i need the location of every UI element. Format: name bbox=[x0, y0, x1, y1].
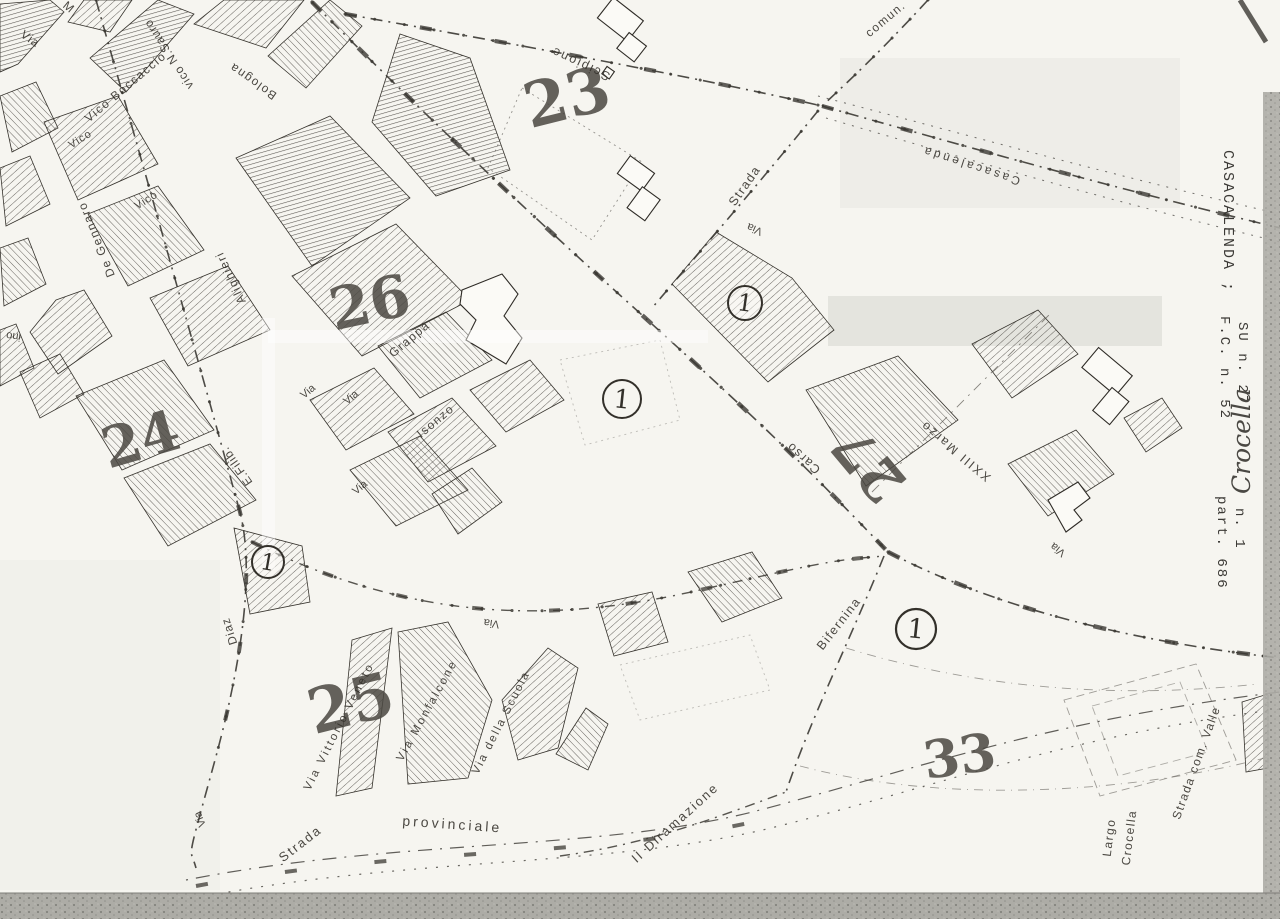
margin-note-n1: n. 1 bbox=[1231, 508, 1247, 550]
city-block bbox=[150, 266, 270, 366]
parcel-marker: 1 bbox=[896, 609, 936, 649]
scanned-cadastral-map: 23 26 24 25 27 33 1 1 1 1 Via M Vico Boc… bbox=[0, 0, 1280, 919]
city-block bbox=[470, 360, 564, 432]
street-label-via-crosstown: Via bbox=[482, 616, 500, 630]
building bbox=[597, 0, 643, 41]
margin-note-crocella: Crocella bbox=[1227, 388, 1256, 494]
street-label-bifernina: Bifernina bbox=[814, 594, 864, 652]
road-corner-fragment bbox=[1240, 0, 1266, 42]
street-label-strada-comunale: Strada bbox=[726, 163, 764, 209]
street-label-largo-crocella: Crocella bbox=[1119, 809, 1140, 866]
building bbox=[604, 156, 670, 221]
city-block bbox=[1124, 398, 1182, 452]
street-label-strada-provinciale-2: provinciale bbox=[402, 813, 503, 836]
city-block bbox=[0, 156, 50, 226]
scan-edge-bottom bbox=[0, 893, 1280, 919]
marker-number: 1 bbox=[612, 384, 632, 416]
street-label-xxiii-marzo: XXIII Marzo bbox=[917, 418, 993, 485]
margin-note-part: part. 686 bbox=[1213, 496, 1229, 590]
street-label-ino-partial: ino bbox=[5, 329, 21, 343]
map-canvas: 23 26 24 25 27 33 1 1 1 1 Via M Vico Boc… bbox=[0, 0, 1280, 919]
street-label-diaz: Diaz bbox=[218, 616, 240, 647]
street-label-strada-provinciale-1: Strada bbox=[276, 822, 325, 865]
building bbox=[627, 187, 660, 221]
marker-number: 1 bbox=[906, 613, 926, 646]
street-label-largo: Largo bbox=[1100, 818, 1119, 858]
building bbox=[1082, 347, 1132, 395]
margin-annotations: CASACALENDA ; F.C. n. 52 SU n. 27 Crocel… bbox=[1213, 150, 1256, 590]
street-label-via-scipione: Via bbox=[744, 220, 764, 238]
building bbox=[1065, 347, 1143, 424]
margin-note-casacalenda: CASACALENDA ; bbox=[1219, 150, 1236, 293]
street-label-carso: Carso bbox=[783, 439, 823, 477]
city-block bbox=[688, 552, 782, 622]
parcel-marker: 1 bbox=[603, 380, 641, 418]
city-block bbox=[0, 238, 46, 306]
road-bifernina bbox=[786, 556, 884, 792]
city-block bbox=[30, 290, 112, 374]
parcel-line bbox=[846, 648, 1258, 691]
street-label-diramazione: II Diramazione bbox=[628, 780, 721, 866]
building bbox=[1093, 387, 1129, 424]
city-block bbox=[0, 82, 58, 152]
street-label-via-east: Via bbox=[1048, 539, 1068, 559]
road-crosstown bbox=[252, 542, 884, 611]
district-number-33: 33 bbox=[919, 721, 999, 791]
city-block bbox=[372, 34, 510, 196]
scan-smudge bbox=[0, 560, 220, 890]
crease bbox=[262, 318, 275, 570]
scan-edge-right bbox=[1263, 92, 1280, 919]
street-label-comunale-partial: comun. bbox=[862, 0, 908, 40]
road-crosstown-bars bbox=[252, 542, 884, 611]
parcel-marker: 1 bbox=[728, 286, 762, 320]
parcel-marker: 1 bbox=[252, 546, 284, 578]
street-label-bologna: Bologna bbox=[226, 60, 279, 103]
city-block bbox=[68, 0, 132, 32]
building bbox=[617, 156, 654, 191]
